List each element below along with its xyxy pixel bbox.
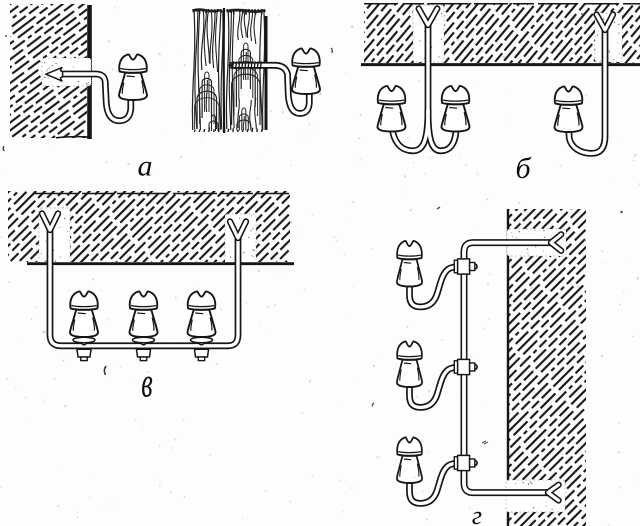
svg-text:а: а [138,150,153,183]
svg-text:в: в [141,358,152,406]
svg-text:г: г [472,501,482,526]
svg-text:б: б [515,152,531,185]
